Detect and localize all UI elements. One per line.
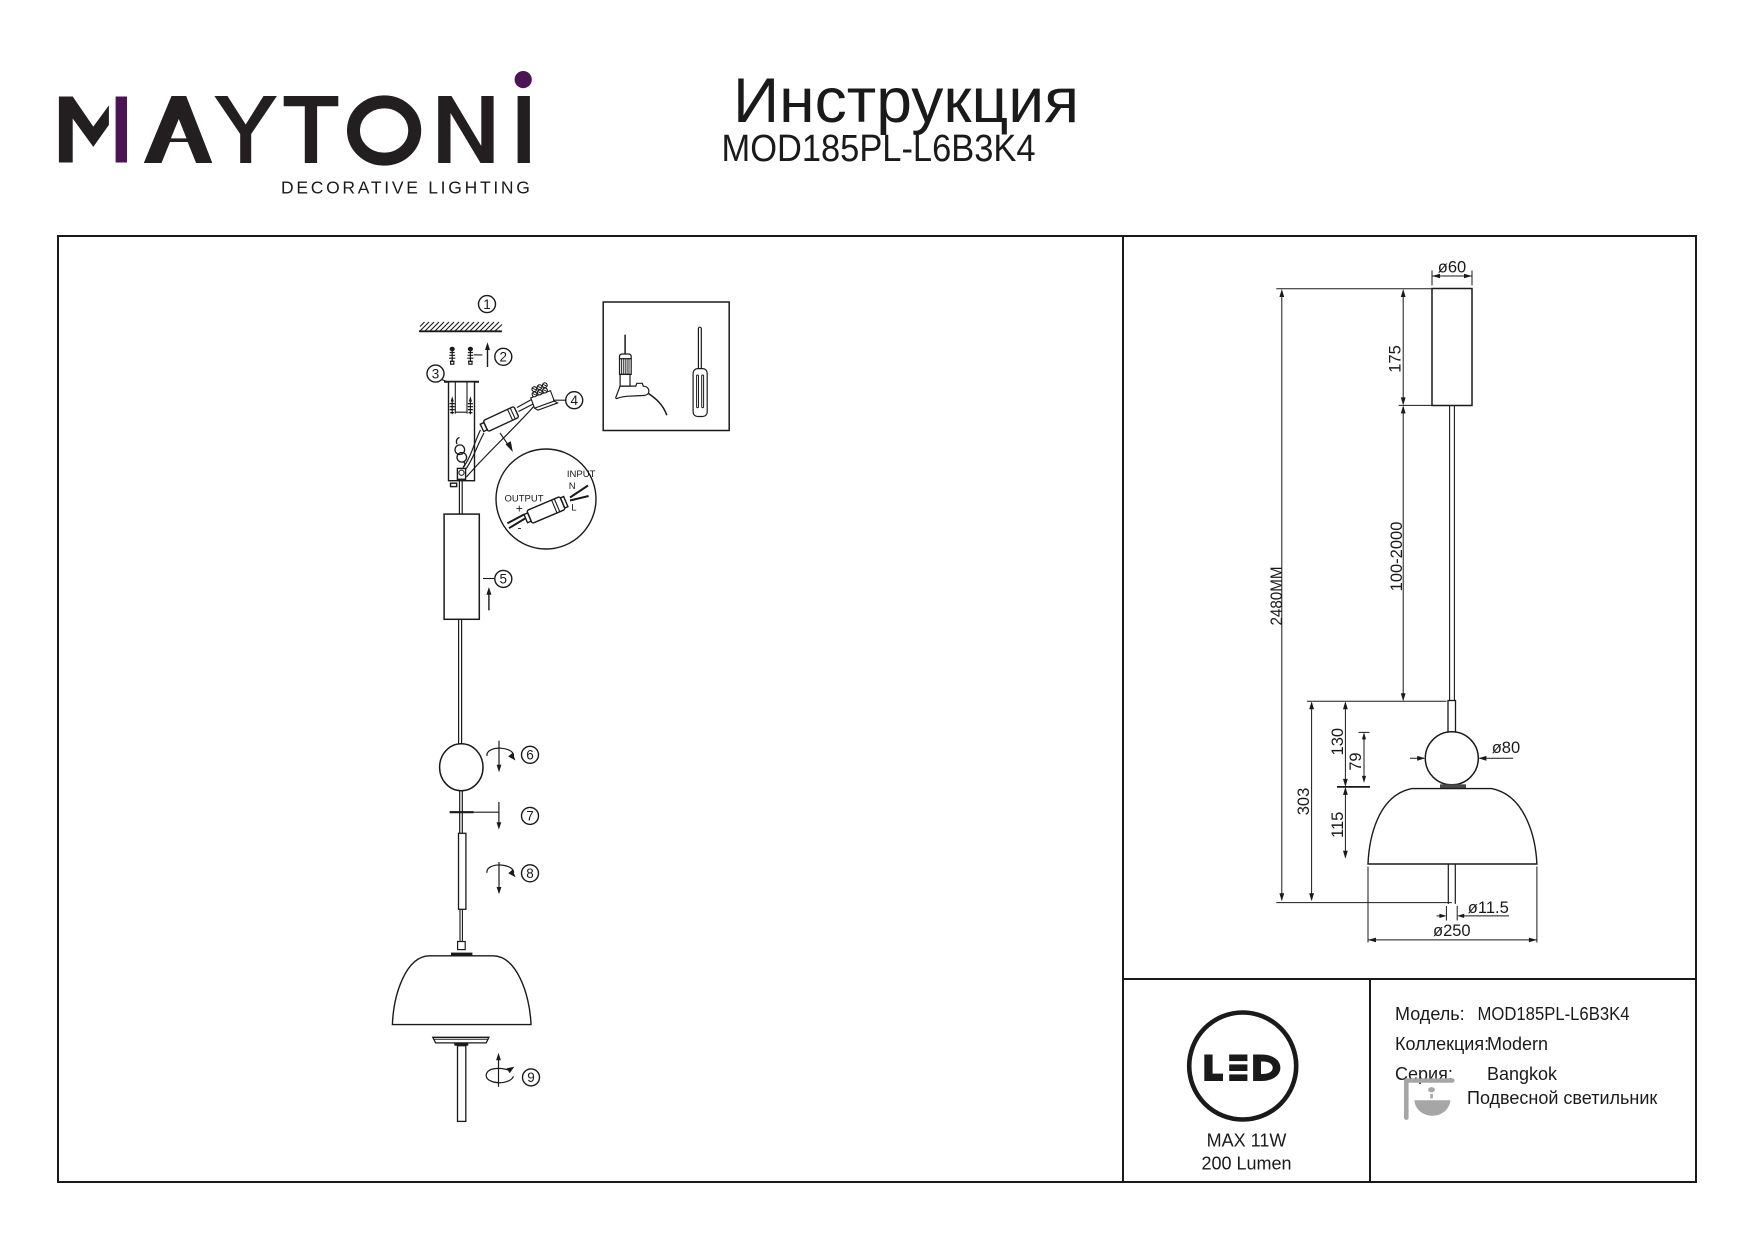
svg-text:N: N xyxy=(569,481,576,492)
svg-text:-: - xyxy=(518,521,522,535)
svg-text:Инструкция: Инструкция xyxy=(733,66,1079,136)
svg-text:DECORATIVE LIGHTING: DECORATIVE LIGHTING xyxy=(281,178,533,198)
svg-text:175: 175 xyxy=(1387,345,1405,373)
svg-text:ø80: ø80 xyxy=(1492,739,1520,757)
svg-text:5: 5 xyxy=(500,572,508,587)
svg-text:1: 1 xyxy=(483,297,491,312)
svg-text:MOD185PL-L6B3K4: MOD185PL-L6B3K4 xyxy=(722,128,1036,170)
svg-text:115: 115 xyxy=(1329,812,1347,838)
svg-text:ø60: ø60 xyxy=(1438,259,1466,277)
svg-text:Подвесной светильник: Подвесной светильник xyxy=(1467,1088,1657,1108)
svg-text:Bangkok: Bangkok xyxy=(1487,1064,1558,1084)
svg-text:Модель:: Модель: xyxy=(1395,1004,1465,1024)
svg-text:Коллекция:: Коллекция: xyxy=(1395,1034,1489,1054)
svg-text:8: 8 xyxy=(526,866,534,881)
svg-text:2: 2 xyxy=(500,350,508,365)
svg-text:Modern: Modern xyxy=(1487,1034,1548,1054)
svg-text:130: 130 xyxy=(1329,728,1347,756)
svg-text:3: 3 xyxy=(432,366,440,381)
svg-text:MAX 11W: MAX 11W xyxy=(1207,1131,1287,1151)
svg-text:MOD185PL-L6B3K4: MOD185PL-L6B3K4 xyxy=(1478,1004,1630,1024)
svg-text:ø250: ø250 xyxy=(1433,922,1471,940)
svg-text:6: 6 xyxy=(526,748,534,763)
svg-text:OUTPUT: OUTPUT xyxy=(505,494,544,505)
svg-text:L: L xyxy=(571,503,576,514)
svg-text:2480MM: 2480MM xyxy=(1268,567,1286,626)
svg-text:+: + xyxy=(516,502,523,516)
svg-text:4: 4 xyxy=(570,393,578,408)
svg-text:303: 303 xyxy=(1295,788,1313,816)
svg-text:79: 79 xyxy=(1347,752,1365,770)
svg-text:ø11.5: ø11.5 xyxy=(1468,899,1509,917)
svg-text:INPUT: INPUT xyxy=(567,469,596,480)
svg-text:200 Lumen: 200 Lumen xyxy=(1201,1154,1291,1174)
svg-text:100-2000: 100-2000 xyxy=(1388,522,1406,592)
svg-text:9: 9 xyxy=(527,1070,535,1085)
svg-text:7: 7 xyxy=(526,809,534,824)
